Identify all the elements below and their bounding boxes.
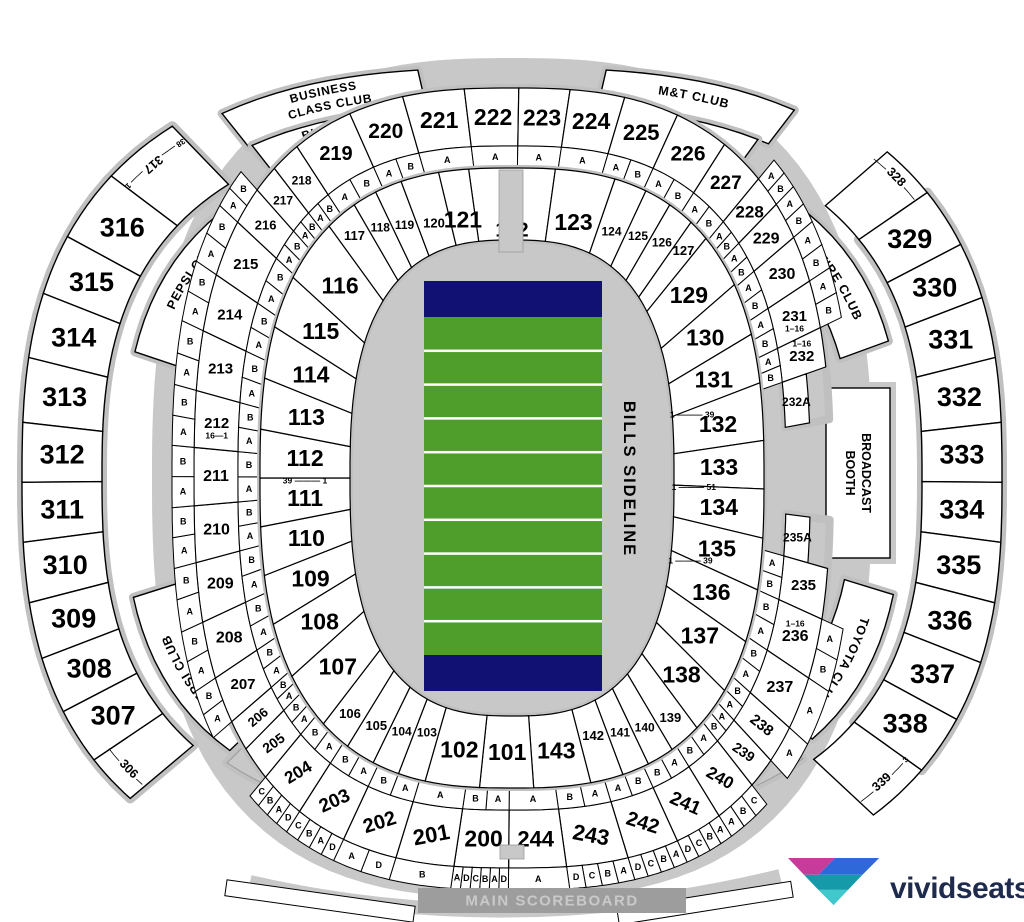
section-label: 124 bbox=[601, 225, 621, 239]
section-label: 307 bbox=[91, 700, 136, 730]
section-label: 231 bbox=[782, 308, 807, 325]
section-label: 216 bbox=[255, 218, 277, 233]
section-label: 338 bbox=[883, 709, 928, 739]
section-label: 133 bbox=[700, 454, 738, 480]
section-label: 113 bbox=[288, 404, 325, 430]
row-letter: A bbox=[805, 236, 812, 246]
row-letter: B bbox=[675, 191, 682, 201]
section-label: 200 bbox=[464, 826, 502, 852]
section-label: 228 bbox=[735, 202, 763, 221]
row-letter: A bbox=[745, 283, 752, 293]
section-label: 230 bbox=[769, 266, 796, 283]
section-label: 118 bbox=[371, 221, 391, 235]
row-letter: A bbox=[214, 714, 221, 724]
section-label: 229 bbox=[753, 230, 780, 247]
row-letter: A bbox=[765, 357, 772, 367]
row-letter: B bbox=[342, 754, 349, 764]
section-label: 137 bbox=[681, 623, 719, 649]
section-label: 213 bbox=[208, 361, 233, 378]
sideline-label: BILLS SIDELINE bbox=[620, 401, 638, 557]
row-letter: B bbox=[419, 869, 426, 879]
section-label: 226 bbox=[670, 142, 705, 165]
row-letter: B bbox=[246, 508, 253, 518]
row-letter: D bbox=[375, 860, 382, 870]
row-letter: D bbox=[635, 862, 642, 872]
row-letter: B bbox=[654, 768, 661, 778]
row-letter: D bbox=[685, 844, 692, 854]
row-letter: B bbox=[255, 604, 262, 614]
row-letter: A bbox=[180, 487, 187, 497]
yard-line bbox=[424, 620, 602, 623]
section-label: 209 bbox=[207, 576, 234, 593]
section-label: 105 bbox=[365, 718, 387, 733]
row-letter: B bbox=[711, 721, 718, 731]
row-letter: D bbox=[463, 873, 470, 883]
section-label: 123 bbox=[554, 209, 592, 235]
row-letter: B bbox=[206, 691, 213, 701]
row-range-note: 1 ——— 39 bbox=[670, 410, 715, 420]
section-label: 112 bbox=[287, 445, 324, 471]
row-letter: A bbox=[535, 874, 542, 884]
row-letter: A bbox=[768, 171, 775, 181]
row-letter: A bbox=[180, 427, 187, 437]
stadium-map: 38 —— 317 —— 131631531431331231131030930… bbox=[0, 0, 1024, 922]
row-letter: A bbox=[716, 231, 723, 241]
section-label: 131 bbox=[695, 367, 734, 393]
section-label: 335 bbox=[936, 550, 981, 580]
row-letter: A bbox=[268, 294, 275, 304]
section-label: 312 bbox=[40, 439, 85, 469]
row-letter: A bbox=[286, 691, 293, 701]
row-letter: B bbox=[734, 686, 741, 696]
section-label: 224 bbox=[572, 108, 611, 134]
section-label: 232 bbox=[789, 348, 814, 365]
row-letter: B bbox=[408, 162, 415, 172]
row-letter: A bbox=[444, 155, 451, 165]
section-label: 130 bbox=[686, 325, 724, 351]
row-letter: A bbox=[247, 531, 254, 541]
yard-line bbox=[424, 485, 602, 488]
row-letter: A bbox=[655, 179, 662, 189]
section-label: 336 bbox=[927, 605, 972, 635]
row-letter: A bbox=[402, 783, 409, 793]
yard-line bbox=[424, 552, 602, 555]
row-letter: C bbox=[751, 795, 758, 805]
tunnel-bottom bbox=[500, 845, 524, 859]
section-label: 141 bbox=[610, 726, 630, 740]
section-label: 102 bbox=[440, 736, 478, 762]
row-letter: C bbox=[295, 821, 302, 831]
section-label: 140 bbox=[635, 721, 655, 735]
endzone-bottom bbox=[424, 655, 602, 691]
section-label: 223 bbox=[523, 104, 561, 130]
row-range-note: 1–16 bbox=[792, 339, 811, 349]
section-label: 237 bbox=[767, 679, 794, 696]
section-label: 225 bbox=[623, 120, 660, 145]
row-letter: A bbox=[727, 700, 734, 710]
row-letter: C bbox=[696, 838, 703, 848]
section-label: 142 bbox=[582, 728, 604, 743]
section-label: 211 bbox=[203, 468, 229, 485]
row-letter: A bbox=[719, 711, 726, 721]
row-letter: A bbox=[579, 156, 586, 166]
row-range-note: 1–16 bbox=[786, 619, 805, 629]
section-label: 309 bbox=[51, 603, 96, 633]
row-letter: A bbox=[186, 607, 193, 617]
row-letter: A bbox=[454, 873, 461, 883]
section-label: 127 bbox=[673, 243, 695, 258]
row-letter: A bbox=[326, 742, 333, 752]
row-letter: A bbox=[360, 766, 367, 776]
row-letter: B bbox=[248, 555, 255, 565]
row-letter: B bbox=[261, 317, 268, 327]
row-letter: B bbox=[187, 336, 194, 346]
logo-wordmark: vividseats bbox=[890, 872, 1024, 905]
svg-text:BROADCAST: BROADCAST bbox=[859, 433, 873, 513]
row-letter: B bbox=[306, 829, 313, 839]
yard-line bbox=[424, 417, 602, 420]
svg-text:BOOTH: BOOTH bbox=[843, 450, 857, 495]
section-label: 134 bbox=[700, 494, 739, 520]
section-label: 315 bbox=[69, 267, 114, 297]
section-label: 334 bbox=[939, 495, 984, 525]
section-label: 218 bbox=[292, 173, 312, 187]
row-letter: B bbox=[326, 204, 333, 214]
row-letter: B bbox=[767, 579, 774, 589]
row-letter: B bbox=[687, 746, 694, 756]
section-label: 129 bbox=[670, 282, 708, 308]
row-letter: B bbox=[277, 272, 284, 282]
row-letter: B bbox=[763, 602, 770, 612]
row-letter: A bbox=[757, 626, 764, 636]
row-letter: A bbox=[317, 836, 324, 846]
row-letter: A bbox=[492, 152, 499, 162]
section-label: 103 bbox=[417, 725, 437, 739]
row-letter: B bbox=[309, 222, 316, 232]
row-letter: B bbox=[813, 258, 820, 268]
row-letter: D bbox=[285, 813, 292, 823]
section-label: 116 bbox=[322, 272, 359, 298]
logo-aqua-facet bbox=[818, 890, 848, 905]
section-label: 219 bbox=[319, 143, 352, 165]
vividseats-logo: vividseats bbox=[788, 858, 1024, 905]
section-label: 104 bbox=[392, 725, 412, 739]
stadium-seating-chart-page: 38 —— 317 —— 131631531431331231131030930… bbox=[0, 0, 1024, 922]
row-letter: A bbox=[301, 714, 308, 724]
row-letter: A bbox=[592, 788, 599, 798]
section-label: 311 bbox=[40, 495, 84, 525]
row-letter: B bbox=[635, 776, 642, 786]
section-label: 107 bbox=[319, 654, 357, 680]
row-letter: A bbox=[348, 851, 355, 861]
section-label: 214 bbox=[217, 307, 243, 324]
row-letter: B bbox=[634, 170, 641, 180]
wall-notch-top bbox=[497, 58, 527, 78]
row-letter: B bbox=[312, 727, 319, 737]
row-letter: A bbox=[276, 804, 283, 814]
row-letter: A bbox=[192, 306, 199, 316]
section-label: 120 bbox=[423, 216, 445, 231]
section-label: 235A bbox=[783, 530, 812, 544]
row-letter: B bbox=[796, 216, 803, 226]
row-letter: A bbox=[671, 757, 678, 767]
section-label: 330 bbox=[912, 273, 957, 303]
yard-line bbox=[424, 519, 602, 522]
section-label: 143 bbox=[537, 737, 575, 763]
row-letter: C bbox=[648, 858, 655, 868]
row-letter: D bbox=[573, 872, 580, 882]
row-letter: B bbox=[767, 373, 774, 383]
row-letter: B bbox=[660, 854, 667, 864]
row-letter: B bbox=[251, 364, 258, 374]
vividseats-mark-icon bbox=[788, 858, 879, 905]
section-label: 314 bbox=[51, 323, 96, 353]
row-letter: A bbox=[535, 152, 542, 162]
row-letter: D bbox=[501, 874, 508, 884]
row-letter: C bbox=[258, 786, 265, 796]
section-label: 222 bbox=[474, 104, 512, 130]
row-letter: B bbox=[240, 184, 247, 194]
row-letter: B bbox=[825, 306, 832, 316]
row-letter: A bbox=[181, 546, 188, 556]
section-label: 207 bbox=[230, 676, 255, 693]
scoreboard-label: MAIN SCOREBOARD bbox=[465, 893, 638, 910]
row-letter: A bbox=[530, 794, 537, 804]
section-label: 308 bbox=[67, 654, 112, 684]
row-letter: A bbox=[786, 748, 793, 758]
row-letter: B bbox=[246, 460, 253, 470]
row-letter: B bbox=[738, 267, 745, 277]
section-label: 316 bbox=[100, 212, 145, 242]
row-letter: A bbox=[246, 484, 253, 494]
row-letter: A bbox=[208, 249, 215, 259]
row-letter: A bbox=[728, 816, 735, 826]
row-letter: A bbox=[673, 849, 680, 859]
row-letter: B bbox=[267, 796, 274, 806]
row-letter: B bbox=[180, 457, 187, 467]
row-letter: A bbox=[273, 665, 280, 675]
section-label: 232A bbox=[782, 395, 811, 409]
row-letter: A bbox=[769, 558, 776, 568]
section-label: 111 bbox=[287, 485, 323, 511]
row-letter: B bbox=[566, 792, 573, 802]
section-label: 210 bbox=[203, 522, 230, 539]
section-label: 332 bbox=[937, 382, 982, 412]
row-letter: B bbox=[247, 413, 254, 423]
section-label: 106 bbox=[339, 706, 361, 721]
section-label: 215 bbox=[233, 256, 258, 273]
section-label: 217 bbox=[273, 193, 293, 207]
section-label: 235 bbox=[791, 577, 816, 594]
section-label: 139 bbox=[660, 710, 682, 725]
row-letter: B bbox=[707, 832, 714, 842]
row-letter: A bbox=[757, 320, 764, 330]
row-letter: B bbox=[740, 806, 747, 816]
row-letter: B bbox=[191, 637, 198, 647]
row-letter: B bbox=[294, 242, 301, 252]
row-letter: A bbox=[286, 255, 293, 265]
row-letter: A bbox=[302, 231, 309, 241]
row-letter: A bbox=[230, 200, 237, 210]
row-letter: B bbox=[605, 868, 612, 878]
row-range-note: 1–16 bbox=[785, 324, 804, 334]
row-letter: A bbox=[386, 169, 393, 179]
row-letter: B bbox=[364, 179, 371, 189]
endzone-top bbox=[424, 281, 602, 317]
section-label: 114 bbox=[292, 361, 329, 387]
section-label: 236 bbox=[782, 628, 809, 645]
section-label: 110 bbox=[288, 525, 325, 551]
section-label: 227 bbox=[710, 173, 742, 194]
row-letter: B bbox=[472, 793, 479, 803]
row-letter: A bbox=[495, 794, 502, 804]
row-letter: B bbox=[752, 301, 759, 311]
section-label: 119 bbox=[395, 218, 415, 232]
row-letter: B bbox=[293, 703, 300, 713]
section-label: 329 bbox=[887, 224, 932, 254]
row-letter: B bbox=[199, 278, 206, 288]
row-letter: B bbox=[482, 874, 489, 884]
row-letter: A bbox=[246, 436, 253, 446]
row-letter: B bbox=[266, 647, 273, 657]
row-letter: A bbox=[700, 733, 707, 743]
section-label: 109 bbox=[291, 566, 329, 592]
row-letter: A bbox=[249, 389, 256, 399]
row-range-note: 1 ——— 51 bbox=[672, 482, 717, 492]
row-letter: A bbox=[256, 340, 263, 350]
section-label: 117 bbox=[344, 228, 365, 243]
section-label: 313 bbox=[42, 382, 87, 412]
row-letter: A bbox=[342, 192, 349, 202]
row-letter: C bbox=[473, 874, 480, 884]
yard-line bbox=[424, 383, 602, 386]
section-label: 337 bbox=[910, 659, 955, 689]
row-letter: A bbox=[692, 205, 699, 215]
row-letter: B bbox=[380, 775, 387, 785]
row-letter: B bbox=[706, 219, 713, 229]
row-letter: A bbox=[251, 580, 258, 590]
row-letter: A bbox=[827, 634, 834, 644]
yard-line bbox=[424, 350, 602, 353]
row-letter: C bbox=[589, 871, 596, 881]
section-label: 136 bbox=[692, 579, 730, 605]
row-letter: A bbox=[491, 874, 498, 884]
row-letter: A bbox=[260, 627, 267, 637]
section-label: 333 bbox=[939, 439, 984, 469]
section-label: 212 bbox=[204, 415, 229, 432]
row-letter: B bbox=[820, 665, 827, 675]
row-letter: A bbox=[787, 199, 794, 209]
row-letter: A bbox=[183, 367, 190, 377]
row-letter: B bbox=[751, 649, 758, 659]
section-label: 121 bbox=[444, 207, 483, 233]
row-range-note: 16—1 bbox=[205, 430, 228, 440]
row-letter: A bbox=[615, 783, 622, 793]
row-letter: B bbox=[181, 397, 188, 407]
yard-line bbox=[424, 451, 602, 454]
section-label: 115 bbox=[302, 318, 339, 344]
row-letter: A bbox=[198, 665, 205, 675]
club-broadcast-booth[interactable] bbox=[826, 388, 890, 558]
section-label: 310 bbox=[43, 550, 88, 580]
row-letter: A bbox=[731, 254, 738, 264]
section-label: 126 bbox=[652, 236, 672, 250]
row-letter: A bbox=[620, 865, 627, 875]
section-label: 101 bbox=[488, 739, 527, 765]
row-letter: A bbox=[437, 790, 444, 800]
yard-line bbox=[424, 586, 602, 589]
row-letter: B bbox=[219, 222, 226, 232]
row-letter: B bbox=[180, 516, 187, 526]
section-label: 108 bbox=[301, 609, 340, 635]
row-range-note: 1 ——— 39 bbox=[668, 555, 713, 565]
row-letter: A bbox=[317, 213, 324, 223]
row-letter: D bbox=[329, 842, 336, 852]
section-label: 220 bbox=[368, 120, 403, 143]
section-label: 221 bbox=[420, 107, 459, 133]
logo-teal-facet bbox=[804, 875, 863, 890]
row-letter: A bbox=[717, 825, 724, 835]
row-letter: A bbox=[743, 669, 750, 679]
row-range-note: 39 ——— 1 bbox=[283, 476, 328, 486]
section-label: 138 bbox=[662, 662, 701, 688]
row-letter: B bbox=[183, 576, 190, 586]
row-letter: A bbox=[820, 282, 827, 292]
row-letter: B bbox=[724, 242, 731, 252]
row-letter: A bbox=[613, 162, 620, 172]
tunnel-top bbox=[499, 170, 523, 252]
section-label: 125 bbox=[628, 229, 648, 243]
section-label: 208 bbox=[216, 630, 243, 647]
section-label: 331 bbox=[928, 325, 973, 355]
row-letter: A bbox=[806, 706, 813, 716]
row-letter: B bbox=[280, 680, 287, 690]
row-letter: B bbox=[777, 184, 784, 194]
row-letter: B bbox=[762, 339, 769, 349]
